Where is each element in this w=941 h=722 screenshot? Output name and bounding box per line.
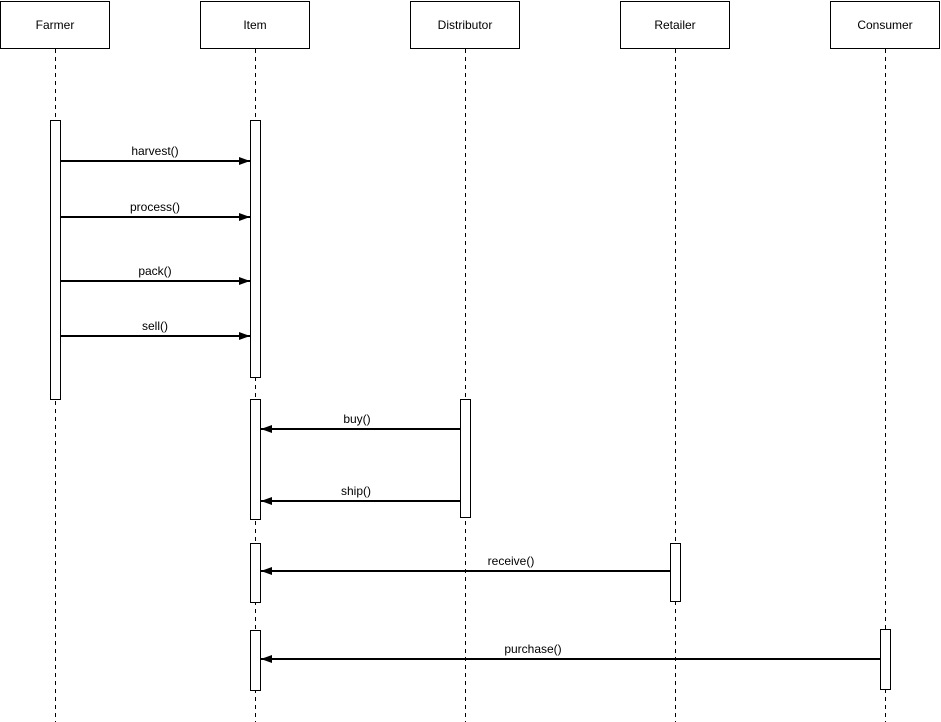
- participant-name: Item: [243, 18, 266, 32]
- arrowhead-icon: [239, 213, 250, 221]
- arrowhead-icon: [239, 277, 250, 285]
- message-label: pack(): [136, 265, 173, 277]
- message-line: [261, 428, 460, 430]
- arrowhead-icon: [239, 157, 250, 165]
- participant-box-retailer: Retailer: [620, 1, 730, 49]
- activation-bar-item: [250, 543, 261, 603]
- participant-box-distributor: Distributor: [410, 1, 520, 49]
- participant-name: Farmer: [36, 18, 75, 32]
- message-line: [61, 280, 250, 282]
- message-line: [61, 216, 250, 218]
- activation-bar-distributor: [460, 399, 471, 518]
- message-line: [261, 658, 880, 660]
- message-label: sell(): [140, 320, 170, 332]
- arrowhead-icon: [261, 425, 272, 433]
- arrowhead-icon: [261, 497, 272, 505]
- arrowhead-icon: [261, 655, 272, 663]
- message-label: buy(): [341, 413, 372, 425]
- participant-box-farmer: Farmer: [0, 1, 110, 49]
- arrowhead-icon: [239, 332, 250, 340]
- participant-name: Retailer: [654, 18, 695, 32]
- message-label: harvest(): [129, 145, 180, 157]
- message-line: [261, 500, 460, 502]
- message-label: process(): [128, 201, 182, 213]
- participant-box-consumer: Consumer: [830, 1, 940, 49]
- activation-bar-consumer: [880, 629, 891, 690]
- message-line: [261, 570, 670, 572]
- message-label: receive(): [486, 555, 537, 567]
- lifeline-consumer: [885, 49, 886, 722]
- lifeline-distributor: [465, 49, 466, 722]
- activation-bar-item: [250, 120, 261, 378]
- message-label: ship(): [339, 485, 373, 497]
- arrowhead-icon: [261, 567, 272, 575]
- participant-name: Consumer: [857, 18, 912, 32]
- message-line: [61, 335, 250, 337]
- activation-bar-item: [250, 399, 261, 520]
- lifeline-retailer: [675, 49, 676, 722]
- participant-box-item: Item: [200, 1, 310, 49]
- activation-bar-farmer: [50, 120, 61, 400]
- message-line: [61, 160, 250, 162]
- activation-bar-item: [250, 630, 261, 691]
- activation-bar-retailer: [670, 543, 681, 602]
- participants-layer: Farmer Item Distributor Retailer Consume…: [0, 0, 941, 722]
- message-label: purchase(): [502, 643, 563, 655]
- sequence-diagram: harvest() process() pack() sell() buy() …: [0, 0, 941, 722]
- participant-name: Distributor: [438, 18, 493, 32]
